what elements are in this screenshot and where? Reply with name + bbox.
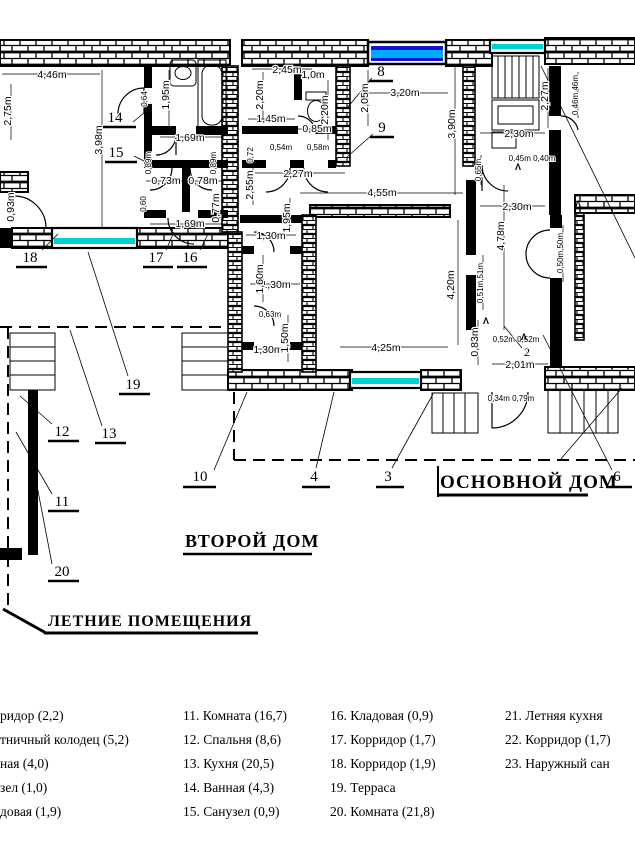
dim-label: 0,51m,51m <box>476 263 485 303</box>
dim-label: 0,52m 0,52m <box>493 335 540 344</box>
legend-item: 16. Кладовая (0,9) <box>330 708 433 724</box>
dim-label: 2,20m <box>319 95 331 124</box>
dim-label: 2,01m <box>505 359 534 371</box>
legend-item: 19. Терраса <box>330 780 396 796</box>
legend-item: ридор (2,2) <box>0 708 64 724</box>
dim-label: 2,05m <box>359 83 371 112</box>
dim-label: 2,75m <box>2 96 14 125</box>
dim-label: 0,77m <box>210 193 222 222</box>
dim-label: 3,20m <box>390 87 419 99</box>
dim-label: 0,78m <box>188 175 217 187</box>
dim-label: 0,83m <box>469 327 481 356</box>
dim-label: 1,95m <box>160 80 172 109</box>
dim-label: 0,63m <box>259 310 282 319</box>
dim-label: 2,30m <box>502 201 531 213</box>
terrace-steps-icon <box>10 333 228 390</box>
room-number: 11 <box>55 494 69 510</box>
dim-label: 0,73m <box>151 175 180 187</box>
door-arrow-icon: Λ <box>521 332 527 342</box>
dim-label: 1,95m <box>281 203 293 232</box>
dim-label: 0,89m <box>209 152 218 175</box>
main-house-label: ОСНОВНОЙ ДОМ <box>440 471 618 493</box>
dim-label: 4,20m <box>445 270 457 299</box>
legend-item: 21. Летняя кухня <box>505 708 603 724</box>
legend-item: 11. Комната (16,7) <box>183 708 287 724</box>
legend-item: 13. Кухня (20,5) <box>183 756 274 772</box>
dim-label: 3,98m <box>93 125 105 154</box>
dim-label: 2,30m <box>504 128 533 140</box>
legend-item: 17. Корридор (1,7) <box>330 732 436 748</box>
door-arrow-icon: Λ <box>575 199 581 209</box>
dim-label: 0,89m <box>144 152 153 175</box>
dim-label: 0,60 <box>139 196 148 212</box>
room-number: 20 <box>55 564 70 580</box>
dim-label: 0,58m <box>307 143 330 152</box>
legend-item: 18. Корридор (1,9) <box>330 756 436 772</box>
dim-label: 0,46m,46m <box>571 75 580 115</box>
room-number: 12 <box>55 424 70 440</box>
floor-plan-drawing: 4,46m 1,69m 0,73m 0,78m 1,69m 2,45m 1,0m… <box>0 0 635 660</box>
room-number: 15 <box>109 145 124 161</box>
dim-label: 4,25m <box>371 342 400 354</box>
room-number: 8 <box>377 64 385 80</box>
dim-label: 4,46m <box>37 69 66 81</box>
dim-label: 1,69m <box>175 132 204 144</box>
dim-label: 1,50m <box>279 323 291 352</box>
room-number: 14 <box>108 110 124 126</box>
dim-label: 1,60m <box>254 264 266 293</box>
dim-label: 0,93m <box>5 192 17 221</box>
dim-label: 0,54m <box>270 143 293 152</box>
dim-label: 3,90m <box>446 109 458 138</box>
dim-label: 4,78m <box>495 221 507 250</box>
room-number: 17 <box>149 250 165 266</box>
room-number-labels: 14 15 8 9 18 17 16 19 12 13 11 20 10 4 3… <box>16 64 632 581</box>
dim-label: 0,34m 0,79m <box>488 394 535 403</box>
legend-item: тничный колодец (5,2) <box>0 732 129 748</box>
dim-label: 2,45m <box>272 64 301 76</box>
door-arrow-icon: Λ <box>515 162 521 172</box>
dim-label: 0,50m,50m <box>556 233 565 273</box>
legend-item: довая (1,9) <box>0 804 61 820</box>
legend-item: 22. Корридор (1,7) <box>505 732 611 748</box>
legend-item: 12. Спальня (8,6) <box>183 732 281 748</box>
room-number: 9 <box>378 120 386 136</box>
legend-item: ная (4,0) <box>0 756 49 772</box>
dim-label: 2,27m <box>283 168 312 180</box>
legend-item: 20. Комната (21,8) <box>330 804 435 820</box>
room-number: 16 <box>183 250 199 266</box>
dim-label: 2,27m <box>539 81 551 110</box>
legend-item: 15. Санузел (0,9) <box>183 804 280 820</box>
dim-label: 1,45m <box>256 113 285 125</box>
legend-item: 23. Наружный сан <box>505 756 610 772</box>
room-number: 2 <box>524 345 530 359</box>
legend-item: зел (1,0) <box>0 780 47 796</box>
dim-label: 4,55m <box>367 187 396 199</box>
legend-item: 14. Ванная (4,3) <box>183 780 274 796</box>
section-labels: ВТОРОЙ ДОМ ОСНОВНОЙ ДОМ ЛЕТНИЕ ПОМЕЩЕНИЯ <box>3 466 618 633</box>
dim-label: 2,55m <box>244 170 256 199</box>
room-number: 19 <box>126 377 141 393</box>
door-arrow-icon: Λ <box>483 316 489 326</box>
room-number: 18 <box>23 250 38 266</box>
room-number: 4 <box>310 469 318 485</box>
dim-label: 0,64 <box>140 91 149 107</box>
room-number: 3 <box>384 469 392 485</box>
room-number: 13 <box>102 426 117 442</box>
summer-rooms-label: ЛЕТНИЕ ПОМЕЩЕНИЯ <box>48 613 252 630</box>
window-cyan-band <box>492 44 543 49</box>
floor-plan-page: 4,46m 1,69m 0,73m 0,78m 1,69m 2,45m 1,0m… <box>0 0 635 849</box>
window-blue-band <box>371 46 443 50</box>
bathtub-icon <box>198 60 226 130</box>
dim-label: 1,69m <box>175 218 204 230</box>
dim-label: 1,0m <box>301 69 325 81</box>
second-house-label: ВТОРОЙ ДОМ <box>185 530 319 551</box>
dim-label: 0,72 <box>246 147 255 163</box>
dim-label: 0,65m <box>474 159 483 182</box>
room-number: 10 <box>193 469 208 485</box>
dim-label: 2,20m <box>254 80 266 109</box>
